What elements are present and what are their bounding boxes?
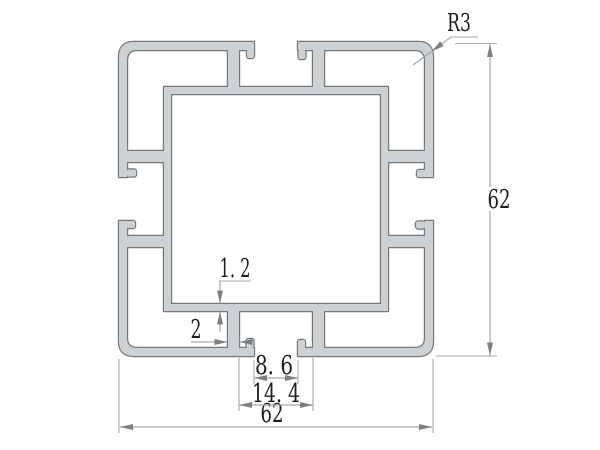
dim-label-overall-height: 62 (488, 185, 511, 215)
dim-web-thickness: 2 (191, 315, 252, 345)
dim-slot-opening: 8. 6 (254, 351, 298, 384)
dim-label-slot-opening: 8. 6 (255, 351, 293, 381)
dim-label-web-thickness: 2 (191, 315, 202, 345)
dim-label-corner-radius: R3 (447, 9, 471, 37)
dim-overall-height: 62 (436, 44, 511, 357)
dim-label-inner-wall-thickness: 1. 2 (220, 254, 251, 284)
profile-drawing: R3 62 62 14. 4 8. 6 2 1. 2 (0, 0, 600, 450)
dim-corner-radius: R3 (413, 9, 478, 65)
profile-body (119, 42, 433, 356)
leader-arrow-line (432, 37, 452, 52)
drawing-canvas: R3 62 62 14. 4 8. 6 2 1. 2 (0, 0, 600, 450)
dim-label-slot-inner-width: 14. 4 (252, 379, 300, 409)
